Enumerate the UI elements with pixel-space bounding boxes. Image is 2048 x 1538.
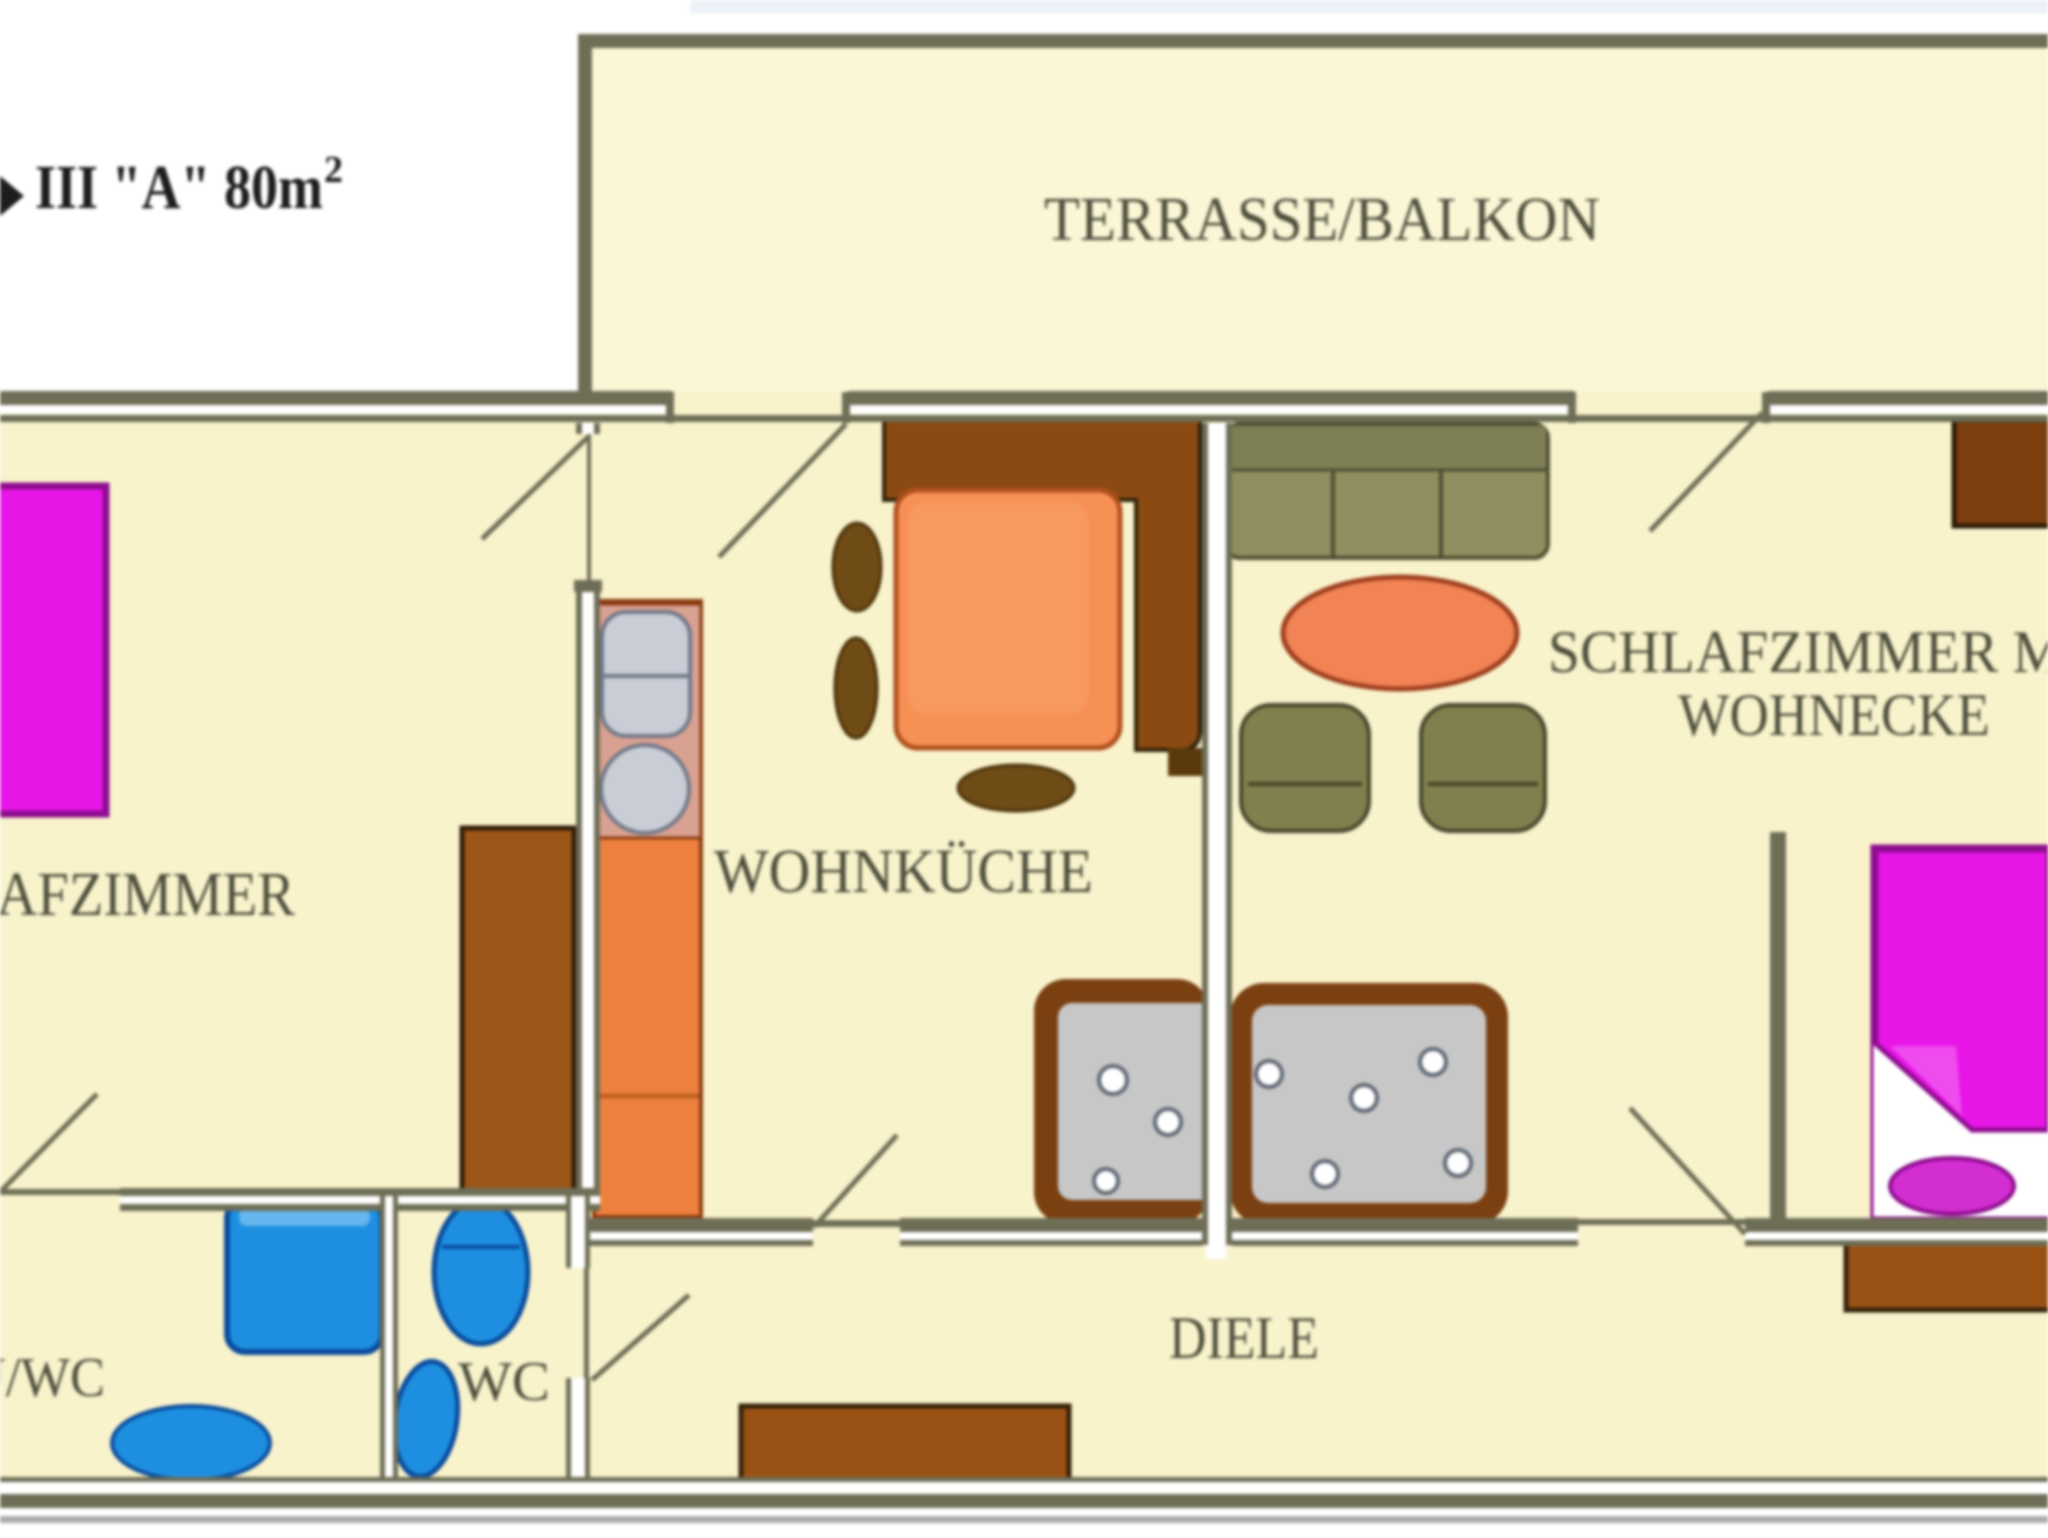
svg-text:DU/WC: DU/WC (0, 1347, 105, 1409)
svg-text:DIELE: DIELE (1169, 1305, 1319, 1371)
svg-text:SCHLAFZIMMER: SCHLAFZIMMER (0, 861, 296, 929)
svg-text:TERRASSE/BALKON: TERRASSE/BALKON (1044, 186, 1600, 254)
svg-text:SCHLAFZIMMER MIT: SCHLAFZIMMER MIT (1548, 619, 2048, 685)
svg-text:III "A" 80m: III "A" 80m (35, 154, 323, 222)
svg-text:WOHNECKE: WOHNECKE (1678, 682, 1990, 748)
svg-text:WOHNKÜCHE: WOHNKÜCHE (714, 838, 1093, 906)
svg-text:WC: WC (458, 1351, 550, 1413)
svg-text:2: 2 (324, 149, 343, 191)
